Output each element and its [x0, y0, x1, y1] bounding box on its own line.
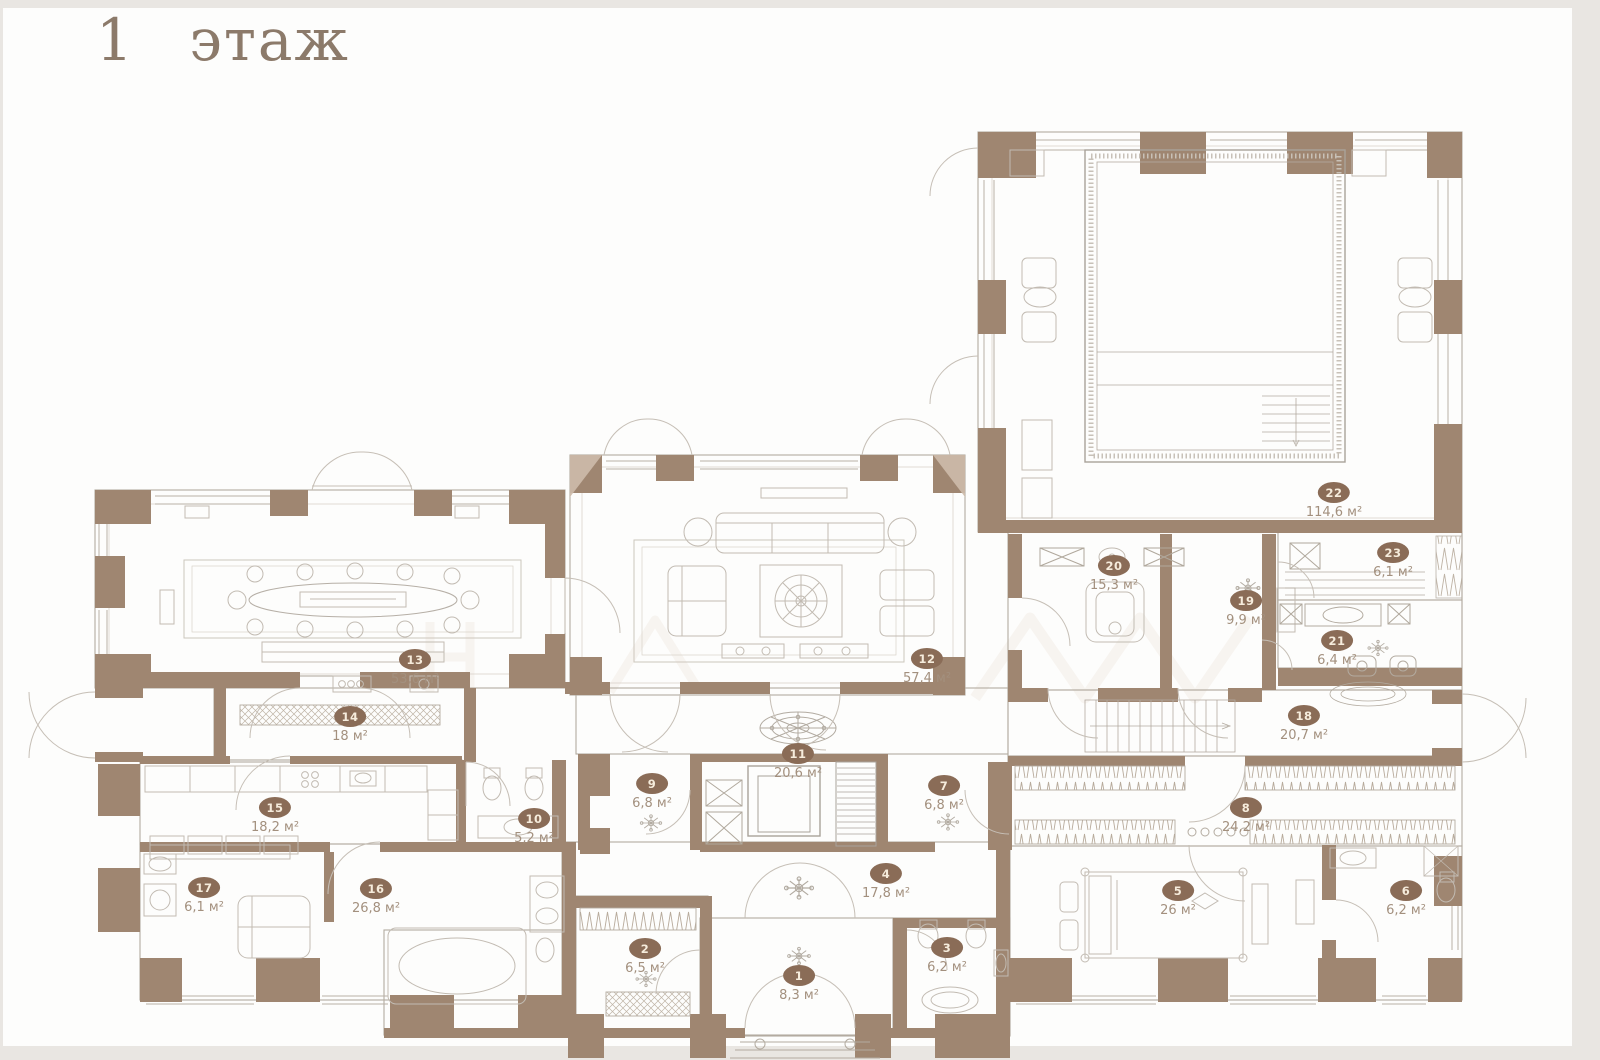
windows [99, 140, 1458, 1004]
hall-chandelier [760, 712, 836, 744]
living-furniture [634, 488, 934, 662]
wardrobe2 [580, 908, 696, 1016]
bedroom5 [1060, 868, 1314, 962]
pool-furniture [1022, 258, 1432, 518]
pool [1010, 150, 1386, 462]
bath10 [478, 768, 558, 838]
bath3 [918, 920, 1008, 1013]
floor-plan-drawing [0, 0, 1600, 1060]
core [706, 762, 876, 846]
wall-outlines [95, 132, 1462, 1036]
corridor-wardrobes [1015, 766, 1455, 844]
kitchen15 [145, 766, 458, 854]
bath17 [144, 845, 290, 916]
sauna-wc [1280, 543, 1425, 676]
